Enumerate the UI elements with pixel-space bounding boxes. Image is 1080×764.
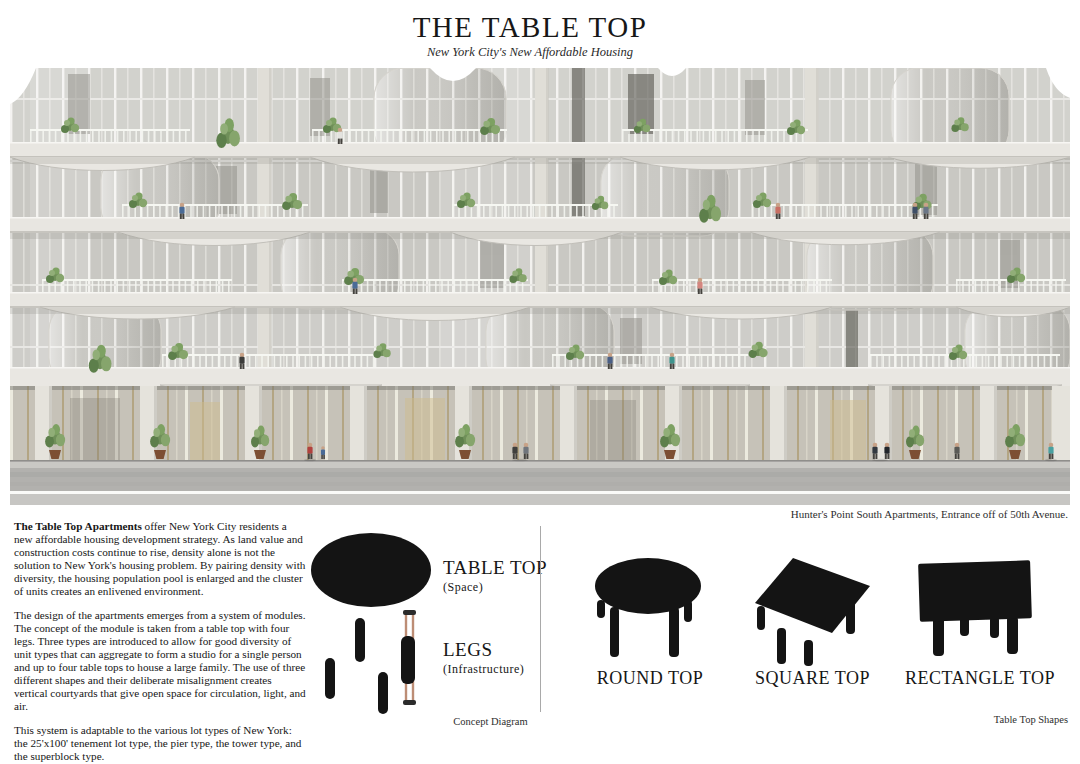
table-legs <box>325 618 388 714</box>
rectangle-top-shape <box>905 552 1055 660</box>
legs-label: LEGS <box>443 639 493 661</box>
shapes-caption: Table Top Shapes <box>994 714 1068 725</box>
presentation-board: THE TABLE TOP New York City's New Afford… <box>0 0 1080 764</box>
paragraph: The design of the apartments emerges fro… <box>14 609 306 713</box>
round-top-shape <box>585 552 715 664</box>
square-top-label: SQUARE TOP <box>735 668 890 689</box>
infrastructure-leg <box>401 636 415 684</box>
description-text: The Table Top Apartments offer New York … <box>14 520 306 764</box>
section-divider <box>540 526 541 712</box>
page-subtitle: New York City's New Affordable Housing <box>0 45 1060 60</box>
page-title: THE TABLE TOP <box>0 11 1060 44</box>
paragraph: This system is adaptable to the various … <box>14 724 306 763</box>
square-top-shape <box>740 548 885 666</box>
round-top-label: ROUND TOP <box>575 668 725 689</box>
paragraph-lead: The Table Top Apartments <box>14 520 142 532</box>
building-rendering <box>10 68 1070 505</box>
legs-sublabel: (Infrastructure) <box>443 662 524 677</box>
table-top-label: TABLE TOP <box>443 557 547 579</box>
header: THE TABLE TOP New York City's New Afford… <box>0 11 1060 60</box>
building-facade-graphic <box>10 68 1070 505</box>
rectangle-top-label: RECTANGLE TOP <box>895 668 1065 689</box>
rendering-caption: Hunter's Point South Apartments, Entranc… <box>791 508 1068 520</box>
table-top-shape <box>311 533 431 607</box>
table-top-sublabel: (Space) <box>443 580 483 595</box>
concept-caption: Concept Diagram <box>433 716 548 727</box>
paragraph: The Table Top Apartments offer New York … <box>14 520 306 598</box>
